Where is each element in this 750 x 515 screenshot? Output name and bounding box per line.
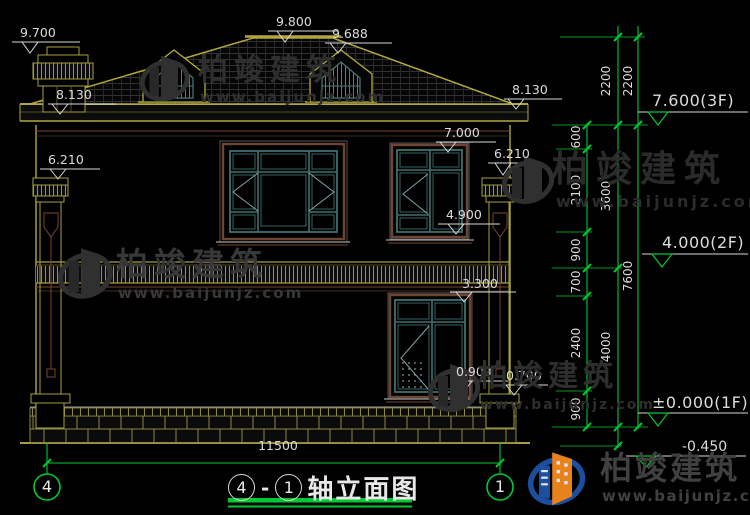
pilaster-left: [31, 178, 70, 428]
dim-label: 4000: [600, 332, 612, 363]
elevation-label: 3.300: [462, 278, 498, 291]
title-dash: -: [261, 476, 269, 500]
cad-elevation-canvas: 9.700 9.800 9.688 8.130 8.130 7.000 6.21…: [0, 0, 750, 515]
watermark-url: www.baijunjz.com: [118, 286, 303, 301]
dim-label: 700: [570, 271, 582, 294]
watermark-brand: 柏竣建筑: [552, 152, 728, 188]
title-axis-left-bubble: 4: [228, 474, 255, 501]
elevation-label: 4.900: [446, 209, 482, 222]
storey-level-label: 4.000(2F): [662, 235, 744, 251]
obscure-glass-dots: [402, 362, 422, 388]
elevation-label: 9.800: [276, 16, 312, 29]
dim-label: 2200: [600, 66, 612, 97]
axis-bubble-left-number: 4: [34, 479, 60, 495]
axis-bubble-right-number: 1: [487, 479, 513, 495]
elevation-label: 8.130: [512, 84, 548, 97]
elevation-label: 8.130: [56, 89, 92, 102]
watermark-brand: 柏竣建筑: [600, 452, 740, 484]
dim-label: 900: [570, 239, 582, 262]
dim-label: 2400: [570, 328, 582, 359]
elevation-label: 9.688: [332, 28, 368, 41]
total-width-dim: 11500: [252, 440, 304, 453]
dim-label: 2200: [622, 66, 634, 97]
elevation-linework: [0, 0, 750, 515]
dim-label: 7600: [622, 261, 634, 292]
brand-logo-icon: [525, 452, 588, 509]
elevation-label: 9.700: [20, 27, 56, 40]
storey-level-label: 7.600(3F): [652, 93, 734, 109]
watermark-url: www.baijunjz.com: [556, 194, 750, 210]
watermark-brand: 柏竣建筑: [116, 248, 268, 280]
window-2f-large: [216, 141, 350, 245]
dim-label: 600: [570, 126, 582, 149]
title-axis-right-bubble: 1: [275, 474, 302, 501]
drawing-title: 4 - 1 轴立面图: [228, 469, 419, 506]
elevation-label: 6.210: [48, 154, 84, 167]
storey-level-label: ±0.000(1F): [652, 395, 748, 411]
elevation-label: 7.000: [444, 127, 480, 140]
watermark-brand: 柏竣建筑: [198, 56, 342, 86]
watermark-url: www.baijunjz.com: [602, 489, 750, 504]
watermark-url: www.baijunjz.com: [480, 398, 655, 412]
elevation-label: 6.210: [494, 148, 530, 161]
title-text: 轴立面图: [307, 469, 419, 506]
watermark-url: www.baijunjz.com: [200, 90, 385, 105]
watermark-brand: 柏竣建筑: [478, 362, 618, 392]
